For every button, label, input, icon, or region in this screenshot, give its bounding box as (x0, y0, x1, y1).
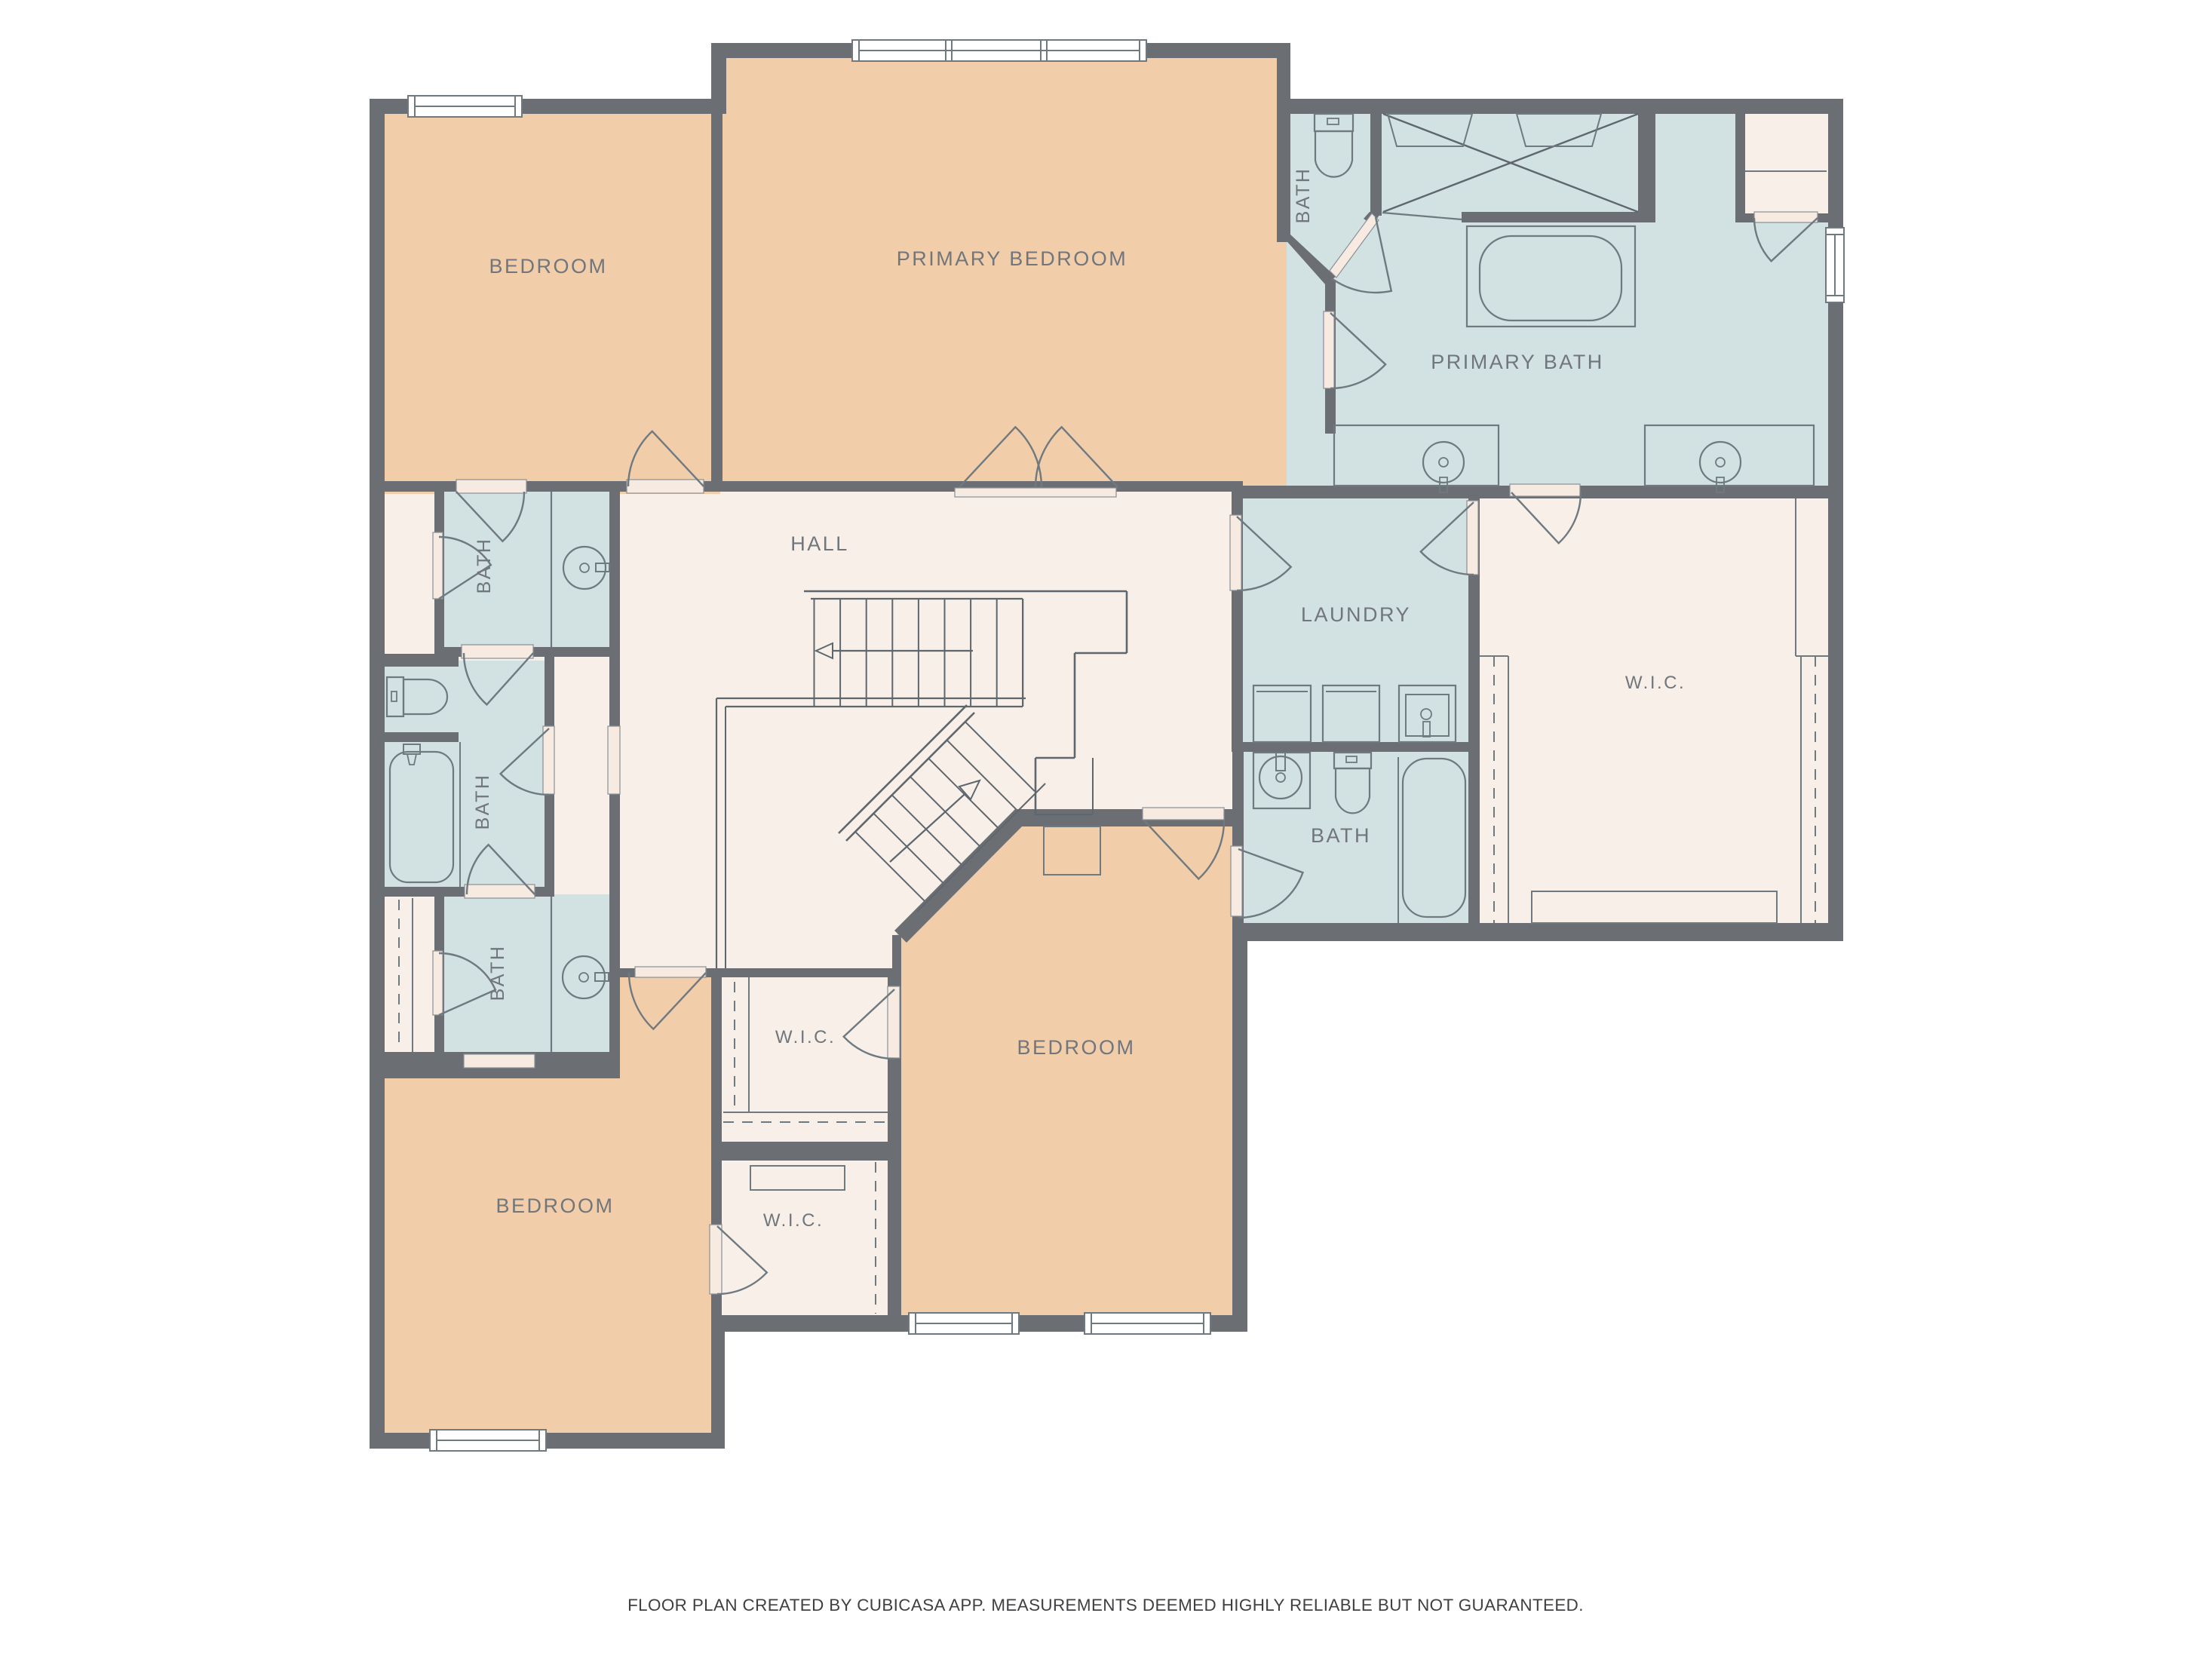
svg-text:PRIMARY BATH: PRIMARY BATH (1431, 351, 1604, 373)
svg-text:BEDROOM: BEDROOM (489, 255, 607, 278)
svg-text:W.I.C.: W.I.C. (763, 1210, 824, 1231)
svg-text:BEDROOM: BEDROOM (495, 1194, 614, 1217)
svg-text:BATH: BATH (487, 945, 508, 1001)
svg-text:HALL: HALL (790, 532, 849, 555)
svg-text:FLOOR PLAN CREATED BY CUBICASA: FLOOR PLAN CREATED BY CUBICASA APP. MEAS… (627, 1596, 1584, 1615)
svg-text:W.I.C.: W.I.C. (775, 1027, 836, 1047)
svg-text:W.I.C.: W.I.C. (1625, 673, 1686, 693)
svg-text:LAUNDRY: LAUNDRY (1301, 603, 1411, 626)
svg-text:BATH: BATH (474, 538, 495, 594)
svg-text:PRIMARY BEDROOM: PRIMARY BEDROOM (897, 247, 1128, 270)
svg-text:BEDROOM: BEDROOM (1017, 1036, 1135, 1059)
svg-text:BATH: BATH (472, 774, 493, 830)
svg-text:BATH: BATH (1311, 824, 1371, 847)
svg-text:BATH: BATH (1293, 167, 1314, 224)
